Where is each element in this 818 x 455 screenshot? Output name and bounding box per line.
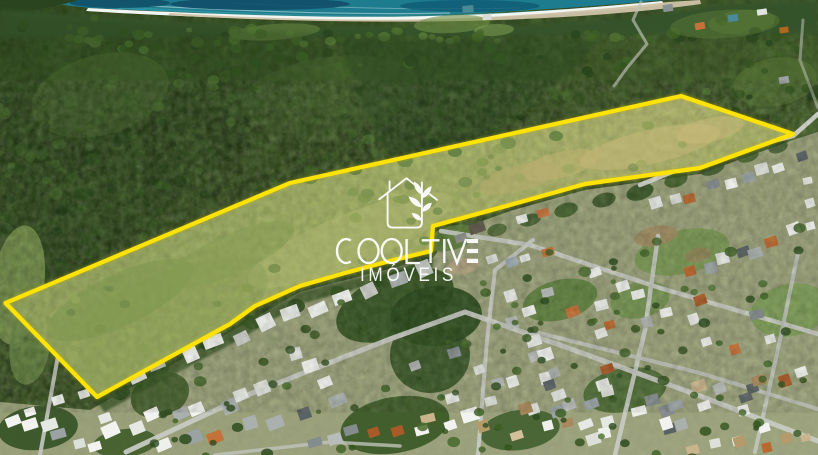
- svg-text:IMÓVEIS: IMÓVEIS: [360, 264, 457, 286]
